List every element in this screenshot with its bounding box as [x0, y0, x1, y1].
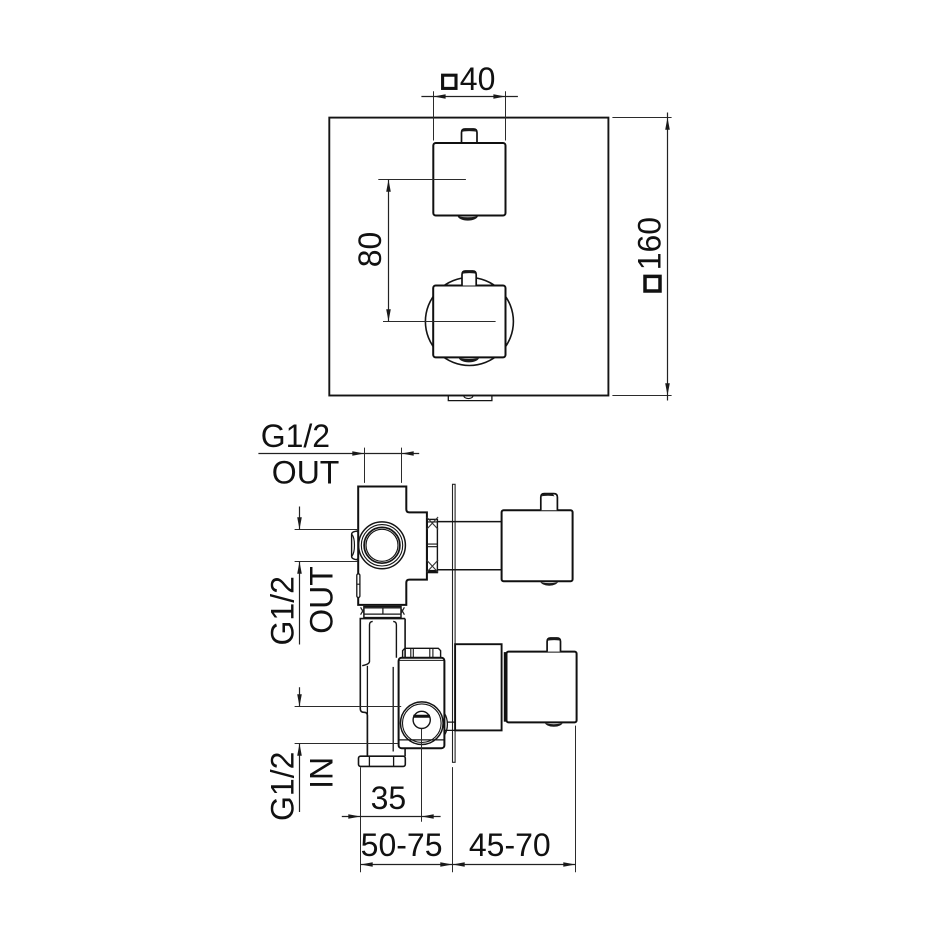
svg-text:160: 160	[632, 217, 668, 270]
svg-text:G1/2: G1/2	[261, 418, 330, 454]
svg-text:40: 40	[460, 61, 496, 97]
svg-text:IN: IN	[304, 757, 340, 789]
svg-text:45-70: 45-70	[469, 827, 551, 863]
svg-text:G1/2: G1/2	[265, 576, 301, 645]
svg-text:OUT: OUT	[304, 566, 340, 634]
svg-text:50-75: 50-75	[361, 827, 443, 863]
svg-text:OUT: OUT	[272, 454, 340, 490]
svg-text:G1/2: G1/2	[265, 752, 301, 821]
svg-text:80: 80	[352, 232, 388, 268]
svg-text:35: 35	[371, 780, 407, 816]
